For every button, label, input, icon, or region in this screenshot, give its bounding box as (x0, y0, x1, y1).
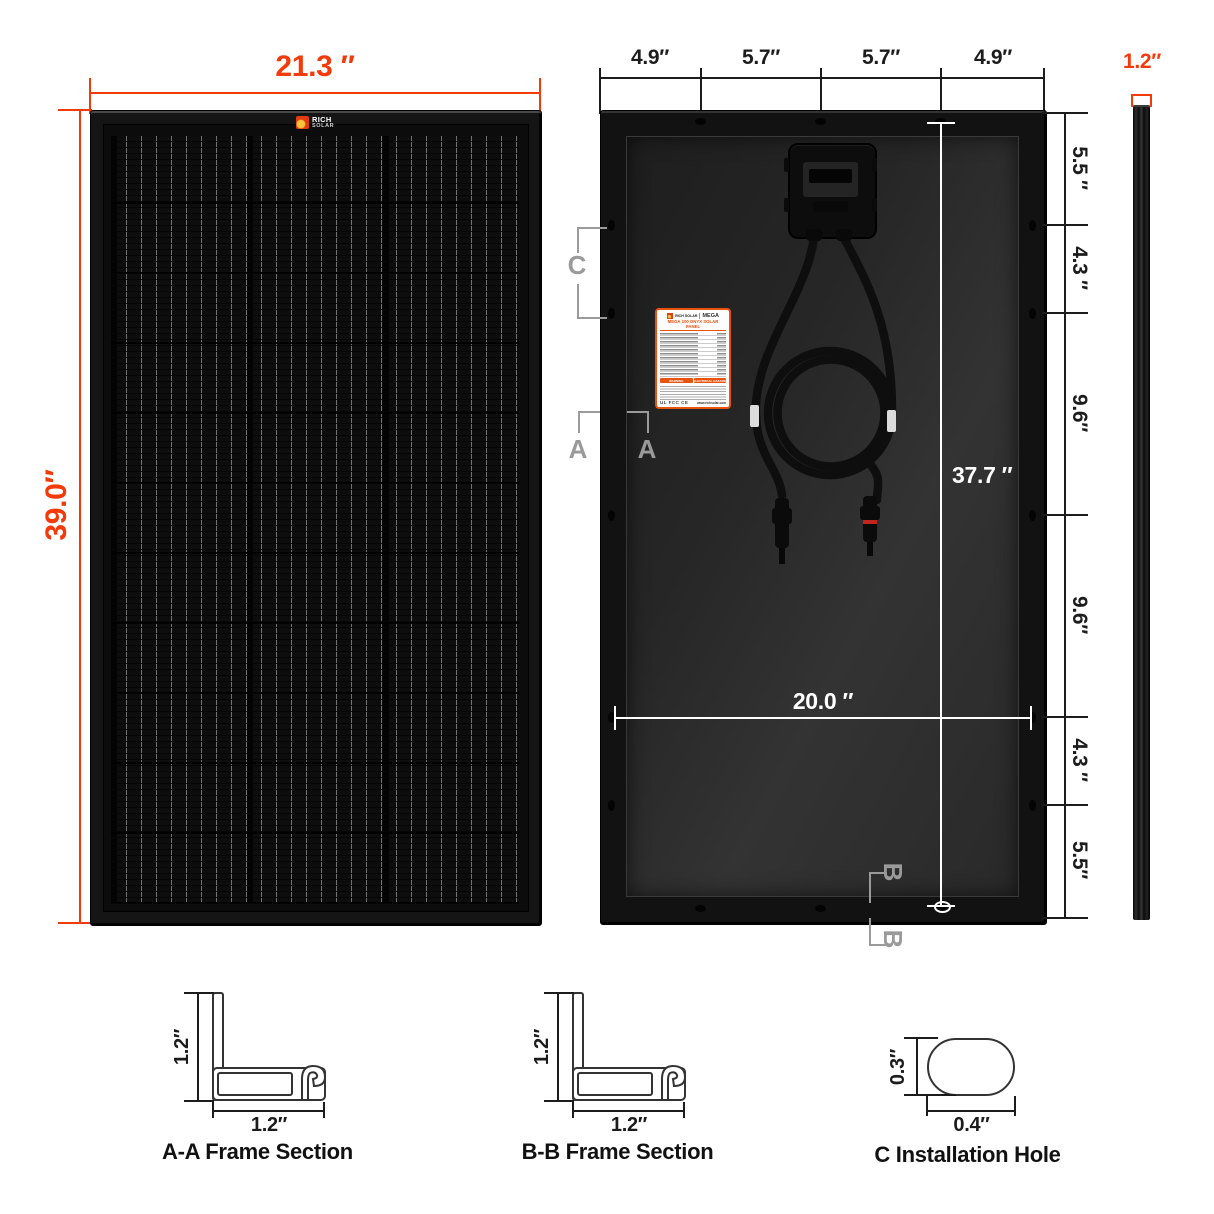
c-vertical-dim: 0.3″ (887, 1032, 909, 1102)
dim-tick (1014, 1096, 1016, 1116)
cable-label-wrap (750, 405, 759, 427)
junction-box-window (809, 169, 852, 183)
side-width-dimension-label: 1.2″ (1115, 50, 1169, 74)
aa-vertical-dim: 1.2″ (171, 1012, 193, 1082)
section-dim-line (927, 1110, 1016, 1112)
section-c-bracket (577, 317, 607, 319)
spec-hazard-chip: ELECTRICAL HAZARD (694, 378, 727, 383)
spec-website: www.richsolar.com (697, 401, 726, 405)
dim-tick (1043, 68, 1045, 114)
side-width-dimension-line (1132, 94, 1152, 96)
dim-tick (820, 68, 822, 114)
back-right-dim-2: 4.3 ″ (1068, 228, 1090, 308)
bb-horizontal-dim: 1.2″ (573, 1114, 685, 1137)
spec-cert-marks: UL FCC CE (660, 400, 688, 405)
section-a-bracket (627, 411, 649, 413)
mc4-connector-right (860, 496, 880, 556)
dim-tick (1042, 716, 1088, 718)
back-top-dim-3: 5.7″ (841, 46, 921, 70)
back-inner-height-label: 37.7 ″ (952, 462, 1012, 489)
dim-tick (1042, 804, 1088, 806)
c-installation-hole-caption: C Installation Hole (860, 1142, 1075, 1168)
cable-label-wrap (887, 410, 896, 432)
dim-tick (700, 68, 702, 114)
section-a-bracket (647, 411, 649, 433)
front-height-dimension-line (79, 110, 81, 924)
spec-fine-print (660, 386, 726, 401)
dim-endpoint-oval (934, 901, 951, 913)
front-width-dimension-line (90, 92, 540, 94)
section-b-marker: B (882, 861, 904, 883)
section-a-bracket (578, 411, 600, 413)
junction-box-tag (813, 201, 848, 212)
dim-tick (927, 122, 955, 124)
dim-tick (1150, 94, 1152, 107)
section-c-bracket (577, 284, 579, 319)
brand-logo-line1: RICH (312, 116, 334, 123)
spec-label-brand: RICH SOLAR (675, 314, 697, 318)
solar-cells-grid (111, 136, 519, 904)
dim-tick (184, 1100, 214, 1102)
section-a-marker: A (568, 434, 588, 465)
back-inner-width-line (615, 717, 1032, 719)
solar-panel-dimension-diagram: 21.3 ″ 39.0″ RICH SOLAR 4.9″ 5.7″ 5.7″ 4… (0, 0, 1214, 1214)
section-c-marker: C (567, 250, 587, 281)
mc4-connector-left (772, 498, 792, 564)
dim-tick (599, 68, 601, 114)
front-width-dimension-label: 21.3 ″ (90, 50, 540, 84)
section-dim-line (573, 1110, 685, 1112)
section-a-marker: A (637, 434, 657, 465)
back-inner-height-line (940, 123, 942, 906)
cable-gland (806, 229, 822, 241)
section-c-bracket (577, 227, 607, 229)
section-dim-line (197, 993, 199, 1102)
brand-logo-icon (296, 116, 309, 129)
cable-gland (836, 229, 852, 241)
solar-panel-side-view (1133, 105, 1150, 920)
spec-label: RICH SOLAR MEGA MEGA 100 ONYX SOLAR PANE… (655, 308, 731, 409)
junction-box-clip (784, 198, 789, 212)
dim-tick (926, 1096, 928, 1116)
dim-tick (184, 992, 214, 994)
back-right-dim-3: 9.6″ (1068, 373, 1090, 453)
dim-tick (904, 1094, 956, 1096)
dim-tick (614, 706, 616, 730)
back-right-dim-1: 5.5 ″ (1068, 128, 1090, 208)
back-top-dimension-line (600, 77, 1045, 79)
dim-tick (940, 68, 942, 114)
bb-vertical-dim: 1.2″ (531, 1012, 553, 1082)
back-top-dim-1: 4.9″ (610, 46, 690, 70)
installation-hole-drawing (927, 1038, 1015, 1096)
dim-tick (58, 109, 92, 111)
bb-frame-section-caption: B-B Frame Section (510, 1139, 725, 1165)
front-height-dimension-label: 39.0″ (42, 447, 72, 563)
dim-tick (1042, 917, 1088, 919)
dim-tick (1042, 224, 1088, 226)
aa-frame-section-caption: A-A Frame Section (150, 1139, 365, 1165)
brand-logo-line2: SOLAR (312, 123, 334, 129)
cable-coil-inner (778, 360, 885, 467)
junction-box-clip (872, 198, 877, 212)
aa-horizontal-dim: 1.2″ (213, 1114, 325, 1137)
spec-warning-chip: WARNING (660, 378, 693, 383)
section-b-bracket (869, 918, 871, 946)
dim-tick (1042, 514, 1088, 516)
back-inner-width-label: 20.0 ″ (723, 688, 923, 715)
section-b-marker: B (882, 928, 904, 950)
dim-tick (904, 1037, 938, 1039)
dim-tick (1030, 706, 1032, 730)
back-right-dim-6: 5.5″ (1068, 820, 1090, 900)
dim-tick (544, 992, 574, 994)
dim-tick (544, 1100, 574, 1102)
spec-label-title: MEGA 100 ONYX SOLAR PANEL (660, 319, 726, 331)
dim-tick (539, 78, 541, 114)
c-horizontal-dim: 0.4″ (927, 1114, 1016, 1137)
section-dim-line (213, 1110, 325, 1112)
section-dim-line (557, 993, 559, 1102)
section-b-bracket (869, 872, 871, 903)
spec-row (660, 372, 726, 376)
back-top-dim-4: 4.9″ (953, 46, 1033, 70)
brand-logo: RICH SOLAR (296, 116, 334, 129)
dim-tick (58, 922, 92, 924)
dim-tick (1042, 112, 1088, 114)
cable-coil-outer (768, 351, 892, 475)
cable-exit (868, 462, 878, 500)
section-dim-line (916, 1038, 918, 1096)
back-top-dim-2: 5.7″ (721, 46, 801, 70)
back-right-dim-5: 4.3 ″ (1068, 720, 1090, 800)
junction-box-clip (872, 158, 877, 172)
junction-box-clip (784, 158, 789, 172)
section-a-bracket (578, 411, 580, 433)
back-right-dim-4: 9.6″ (1068, 575, 1090, 655)
dim-tick (1042, 312, 1088, 314)
